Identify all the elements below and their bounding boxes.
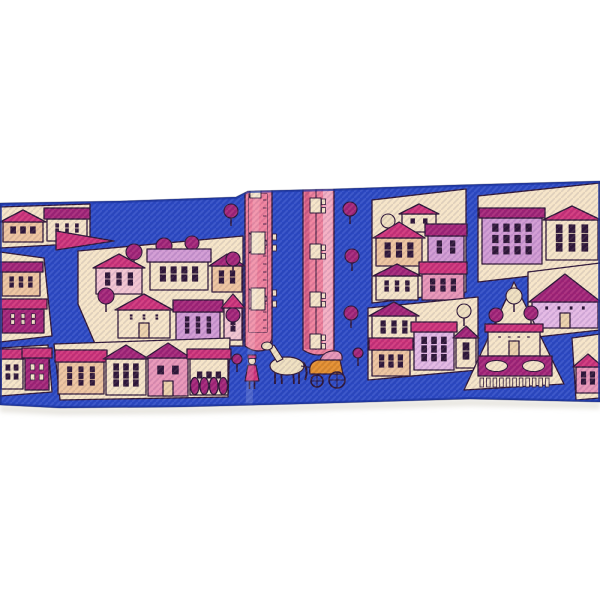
scarf-product-photo [0, 0, 600, 600]
twilly-scarf-illustration [0, 0, 600, 600]
